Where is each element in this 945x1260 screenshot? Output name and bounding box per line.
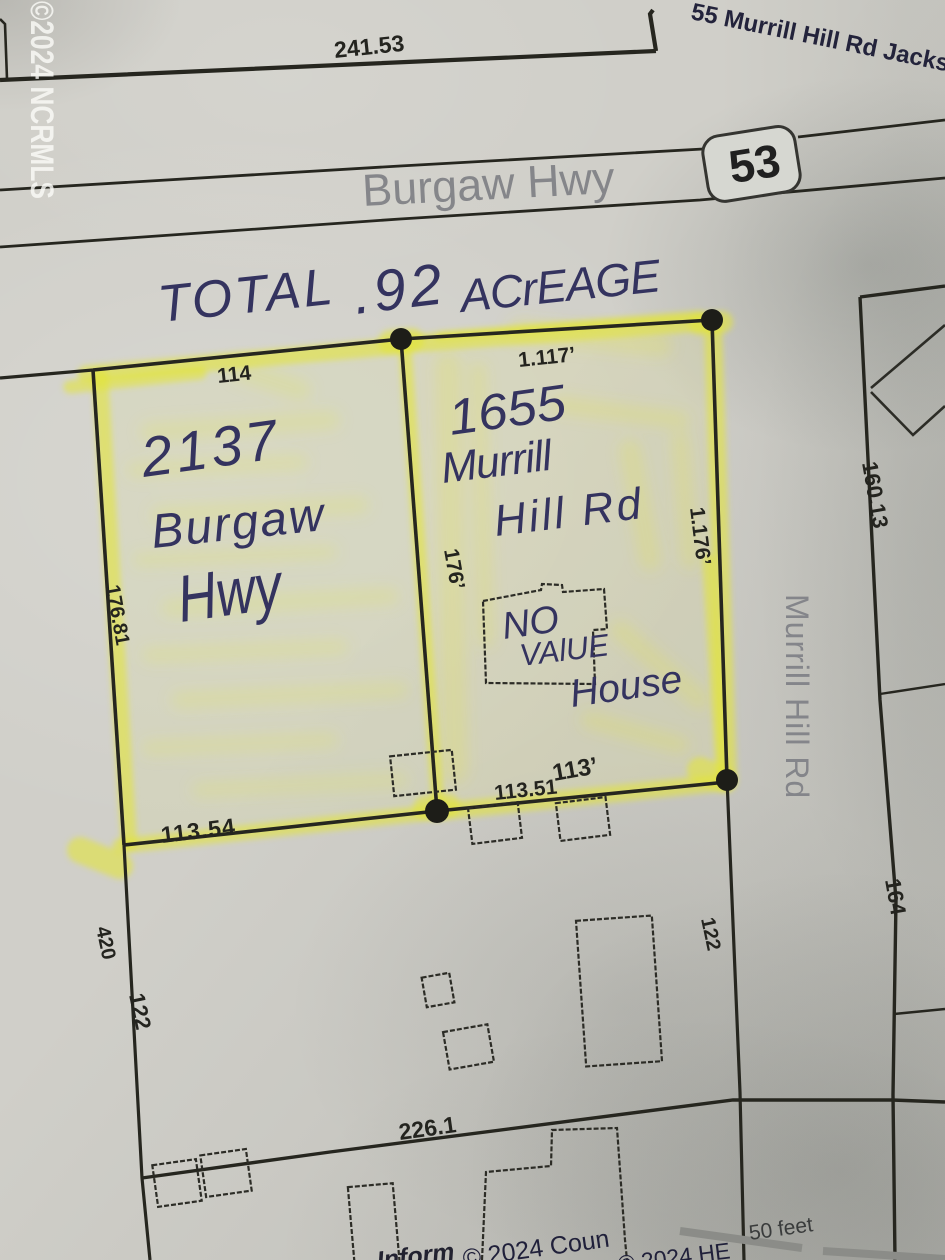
svg-text:50 feet: 50 feet	[747, 1213, 814, 1245]
svg-text:164: 164	[880, 877, 911, 918]
svg-text:Hwy: Hwy	[173, 548, 289, 636]
svg-text:ACrEAGE: ACrEAGE	[455, 249, 665, 322]
svg-text:© 2024 HE: © 2024 HE	[616, 1237, 731, 1260]
svg-text:©2024 NCRMLS: ©2024 NCRMLS	[24, 1, 60, 199]
svg-text:53: 53	[725, 134, 784, 193]
svg-text:114: 114	[216, 362, 252, 388]
svg-text:226.1: 226.1	[397, 1111, 458, 1145]
svg-text:Murrill Hill Rd: Murrill Hill Rd	[779, 594, 815, 799]
svg-text:420: 420	[91, 924, 119, 961]
svg-text:.92: .92	[350, 251, 450, 327]
svg-text:Inform: Inform	[375, 1238, 456, 1260]
svg-text:122: 122	[696, 915, 724, 952]
svg-text:241.53: 241.53	[333, 30, 406, 63]
svg-text:122: 122	[124, 991, 156, 1032]
svg-text:TOTAL: TOTAL	[155, 258, 338, 334]
svg-text:55 Murrill Hill Rd Jacksonvill: 55 Murrill Hill Rd Jacksonville	[689, 0, 945, 92]
svg-text:160.13: 160.13	[857, 460, 893, 531]
